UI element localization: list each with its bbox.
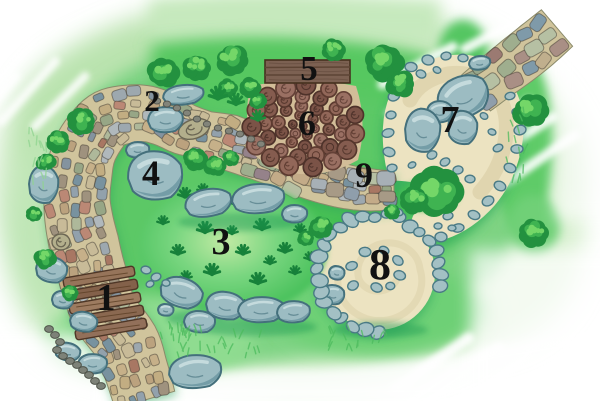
svg-text:4: 4 bbox=[142, 153, 160, 193]
svg-text:5: 5 bbox=[300, 49, 318, 88]
svg-text:2: 2 bbox=[144, 83, 160, 118]
svg-text:6: 6 bbox=[298, 103, 316, 143]
svg-text:3: 3 bbox=[212, 221, 231, 263]
svg-text:7: 7 bbox=[441, 99, 460, 141]
svg-text:9: 9 bbox=[355, 155, 373, 195]
svg-text:8: 8 bbox=[369, 240, 391, 289]
svg-text:1: 1 bbox=[97, 277, 116, 319]
